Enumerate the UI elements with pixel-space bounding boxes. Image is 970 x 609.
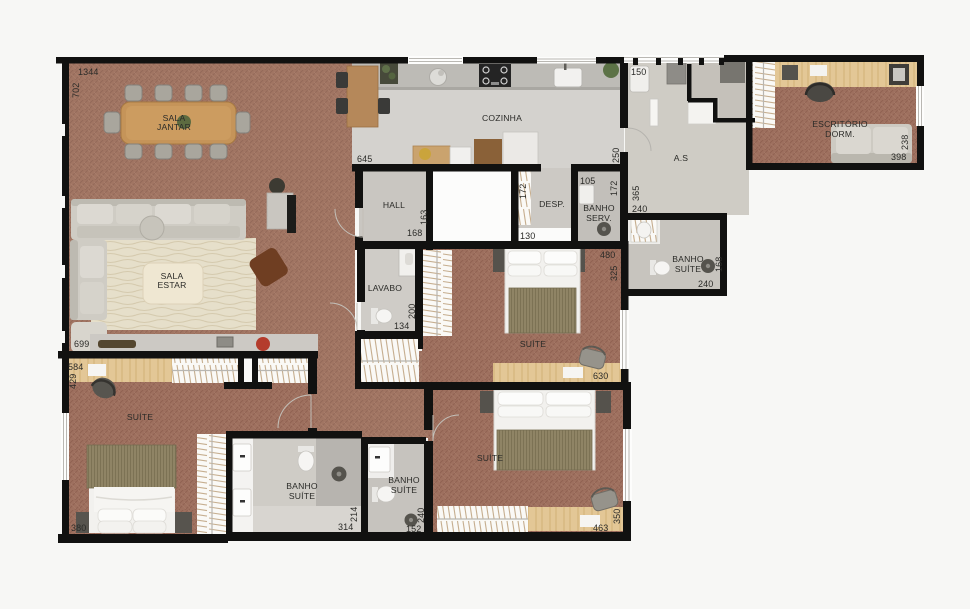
svg-text:A.S: A.S bbox=[674, 153, 689, 163]
svg-text:JANTAR: JANTAR bbox=[157, 122, 191, 132]
svg-text:ESCRITÓRIO: ESCRITÓRIO bbox=[812, 119, 868, 129]
svg-text:429: 429 bbox=[68, 374, 78, 389]
svg-text:150: 150 bbox=[631, 67, 646, 77]
svg-text:SUÍTE: SUÍTE bbox=[520, 339, 546, 349]
svg-text:480: 480 bbox=[600, 250, 615, 260]
svg-text:LAVABO: LAVABO bbox=[368, 283, 402, 293]
svg-text:105: 105 bbox=[580, 176, 595, 186]
svg-text:DESP.: DESP. bbox=[539, 199, 565, 209]
svg-text:163: 163 bbox=[419, 210, 429, 225]
svg-text:398: 398 bbox=[891, 152, 906, 162]
svg-text:BANHO: BANHO bbox=[286, 481, 318, 491]
svg-text:SUÍTE: SUÍTE bbox=[391, 485, 417, 495]
svg-text:DORM.: DORM. bbox=[825, 129, 855, 139]
svg-text:SUÍTE: SUÍTE bbox=[127, 412, 153, 422]
svg-text:463: 463 bbox=[593, 523, 608, 533]
svg-text:ESTAR: ESTAR bbox=[157, 280, 186, 290]
svg-text:BANHO: BANHO bbox=[583, 203, 615, 213]
svg-text:314: 314 bbox=[338, 522, 353, 532]
svg-text:645: 645 bbox=[357, 154, 372, 164]
svg-text:152: 152 bbox=[406, 524, 421, 534]
svg-text:HALL: HALL bbox=[383, 200, 405, 210]
svg-text:240: 240 bbox=[698, 279, 713, 289]
svg-text:325: 325 bbox=[609, 266, 619, 281]
svg-text:134: 134 bbox=[394, 321, 409, 331]
svg-text:214: 214 bbox=[349, 507, 359, 522]
svg-text:BANHO: BANHO bbox=[388, 475, 420, 485]
svg-text:380: 380 bbox=[71, 523, 86, 533]
svg-text:168: 168 bbox=[714, 257, 724, 272]
svg-text:COZINHA: COZINHA bbox=[482, 113, 522, 123]
svg-text:SUÍTE: SUÍTE bbox=[477, 453, 503, 463]
svg-text:630: 630 bbox=[593, 371, 608, 381]
svg-text:172: 172 bbox=[518, 184, 528, 199]
svg-text:172: 172 bbox=[609, 181, 619, 196]
svg-text:BANHO: BANHO bbox=[672, 254, 704, 264]
svg-text:SERV.: SERV. bbox=[586, 213, 612, 223]
svg-text:584: 584 bbox=[68, 362, 83, 372]
svg-text:1344: 1344 bbox=[78, 67, 98, 77]
svg-text:250: 250 bbox=[611, 148, 621, 163]
svg-text:240: 240 bbox=[416, 508, 426, 523]
svg-text:SUÍTE: SUÍTE bbox=[675, 264, 701, 274]
svg-text:238: 238 bbox=[900, 135, 910, 150]
svg-text:699: 699 bbox=[74, 339, 89, 349]
svg-text:365: 365 bbox=[631, 186, 641, 201]
svg-text:SUÍTE: SUÍTE bbox=[289, 491, 315, 501]
svg-text:130: 130 bbox=[520, 231, 535, 241]
svg-text:240: 240 bbox=[632, 204, 647, 214]
svg-text:168: 168 bbox=[407, 228, 422, 238]
svg-text:200: 200 bbox=[407, 304, 417, 319]
svg-text:702: 702 bbox=[71, 83, 81, 98]
svg-text:350: 350 bbox=[612, 509, 622, 524]
